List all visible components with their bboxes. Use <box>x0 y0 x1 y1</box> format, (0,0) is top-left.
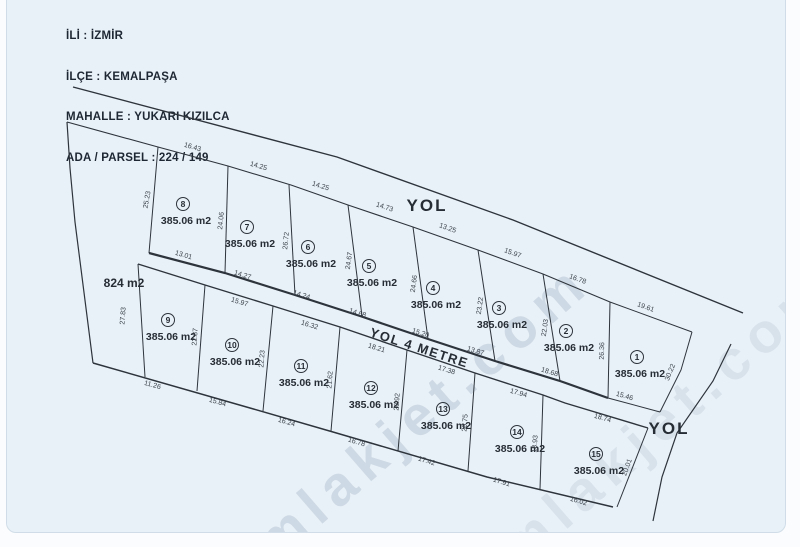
parcel-number: 5 <box>367 261 372 271</box>
dimension-label: 21.62 <box>326 371 334 389</box>
parcel-number: 6 <box>306 242 311 252</box>
cadastral-plan-drawing: YOL YOL 4 METRE YOL 824 m2 1385.06 m2238… <box>0 0 800 547</box>
remainder-area-label: 824 m2 <box>104 276 145 290</box>
parcel-4-label: 4385.06 m2 <box>411 282 461 312</box>
left-boundary <box>67 122 93 363</box>
parcel-number: 1 <box>635 352 640 362</box>
parcel-area: 385.06 m2 <box>477 319 527 331</box>
parcel-area: 385.06 m2 <box>161 215 211 227</box>
parcel-number: 2 <box>564 326 569 336</box>
parcel-number: 3 <box>497 303 502 313</box>
parcel-area: 385.06 m2 <box>279 377 329 389</box>
dimension-label: 15.97 <box>230 297 249 309</box>
dimension-label: 30.22 <box>664 363 677 382</box>
parcel-area: 385.06 m2 <box>210 356 260 368</box>
parcel-8-label: 8385.06 m2 <box>161 198 211 228</box>
divider-parcel-8-7 <box>225 166 228 273</box>
parcel-12-label: 12385.06 m2 <box>349 382 399 412</box>
dimension-label: 15.97 <box>503 247 522 260</box>
dimension-label: 14.27 <box>233 270 252 282</box>
dimension-label: 14.25 <box>311 181 330 193</box>
parcel-number: 8 <box>181 199 186 209</box>
parcel-area: 385.06 m2 <box>146 331 196 343</box>
dimension-label: 20.92 <box>393 393 401 411</box>
dimension-label: 22.23 <box>258 350 266 368</box>
dimension-label: 26.36 <box>599 342 607 360</box>
parcel-area: 385.06 m2 <box>544 342 594 354</box>
parcel-1-label: 1385.06 m2 <box>615 351 665 381</box>
parcel-number: 11 <box>297 361 306 371</box>
dimension-label: 16.24 <box>277 417 296 429</box>
dimension-label: 18.21 <box>367 343 386 355</box>
parcel-number: 15 <box>591 449 601 459</box>
parcel-number: 10 <box>227 340 237 350</box>
parcel-9-label: 9385.06 m2 <box>146 314 196 344</box>
parcel-15-label: 15385.06 m2 <box>574 448 624 478</box>
parcel-11-label: 11385.06 m2 <box>279 360 329 390</box>
dimension-label: 17.42 <box>417 456 436 468</box>
dimension-label: 13.25 <box>438 222 457 234</box>
dimension-label: 16.78 <box>347 437 366 449</box>
dimension-label: 26.72 <box>282 232 291 250</box>
dimension-label: 24.66 <box>410 275 419 293</box>
parcel-area: 385.06 m2 <box>225 238 275 250</box>
dimension-label: 20.75 <box>461 414 469 432</box>
parcel-5-label: 5385.06 m2 <box>347 260 397 290</box>
dimension-label: 17.91 <box>492 477 511 489</box>
parcel-number: 14 <box>512 427 522 437</box>
right-road-label: YOL <box>649 419 690 438</box>
dimension-label: 24.67 <box>345 252 354 270</box>
parcel-number: 7 <box>245 222 250 232</box>
parcel-3-label: 3385.06 m2 <box>477 302 527 332</box>
dimension-label: 23.22 <box>476 297 485 315</box>
dimension-label: 15.84 <box>208 397 227 409</box>
parcel-10-label: 10385.06 m2 <box>210 339 260 369</box>
bottom-boundary <box>93 363 613 507</box>
parcel-number: 13 <box>438 404 448 414</box>
dimension-label: 14.73 <box>375 202 394 214</box>
dimension-label: 19.61 <box>636 301 655 314</box>
parcel-number: 4 <box>431 283 436 293</box>
top-road-label: YOL <box>407 196 448 215</box>
divider-parcel-2-1 <box>608 302 610 398</box>
parcel-number: 12 <box>366 383 376 393</box>
dimension-label: 18.74 <box>593 413 612 425</box>
parcel-1-bottom-edge <box>608 398 660 412</box>
parcel-area: 385.06 m2 <box>411 299 461 311</box>
dimension-label: 18.93 <box>531 435 539 453</box>
parcel-7-label: 7385.06 m2 <box>225 221 275 251</box>
middle-road-upper-edge <box>149 253 608 398</box>
top-road-lower-edge <box>67 122 610 302</box>
parcel-area: 385.06 m2 <box>286 258 336 270</box>
parcel-area: 385.06 m2 <box>615 368 665 380</box>
dimension-label: 24.06 <box>217 212 226 230</box>
parcel-6-label: 6385.06 m2 <box>286 241 336 271</box>
parcel-area: 385.06 m2 <box>349 399 399 411</box>
dimension-label: 25.23 <box>143 190 153 209</box>
dimension-label: 16.32 <box>300 320 319 332</box>
parcel-area: 385.06 m2 <box>347 277 397 289</box>
parcel-number: 9 <box>166 315 171 325</box>
dimension-label: 22.87 <box>191 328 199 346</box>
dimension-label: 16.02 <box>569 496 588 508</box>
dimension-label: 14.68 <box>348 308 367 320</box>
dimension-label: 16.43 <box>183 142 202 154</box>
parcel-area: 385.06 m2 <box>574 465 624 477</box>
divider-parcel-14-15 <box>540 395 543 489</box>
dimension-label: 16.78 <box>568 273 587 286</box>
dimension-label: 27.83 <box>119 307 127 325</box>
dimension-label: 14.24 <box>292 290 311 302</box>
dimension-label: 22.03 <box>541 319 550 337</box>
dimension-label: 14.25 <box>249 161 268 173</box>
